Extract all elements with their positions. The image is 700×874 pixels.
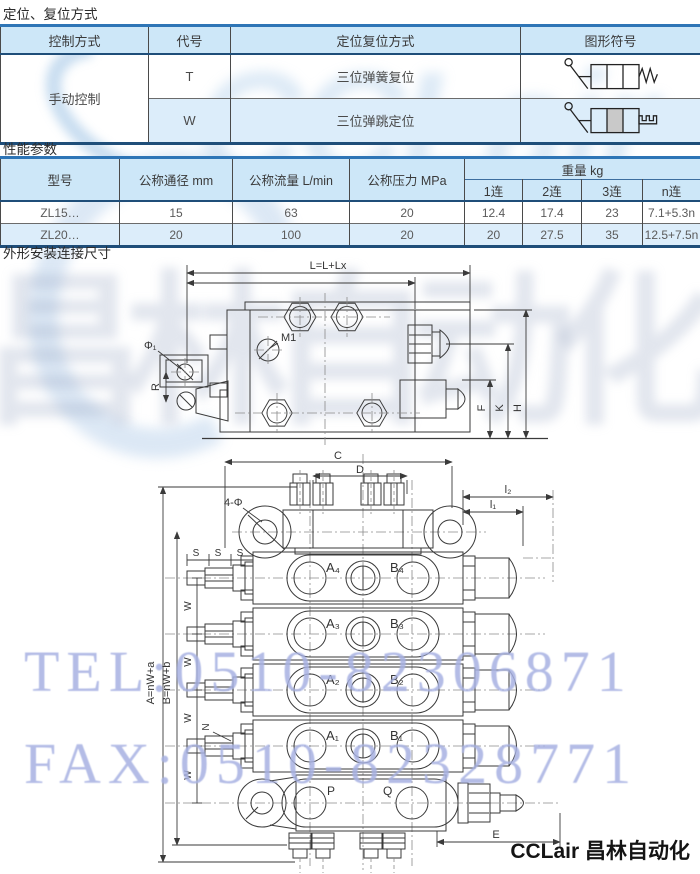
b-dim-label: B=nW+b [161,662,173,705]
positioning-section-title: 定位、复位方式 [3,3,98,23]
overall-length-label: L=L+Lx [310,260,347,272]
port-b4-label: B₄ [390,560,404,575]
port-a3-label: A₃ [326,616,340,631]
lever-detent-valve-symbol-icon [545,99,677,139]
port-a1-label: A₁ [326,728,340,743]
phi1-label: Φ₁ [144,340,157,352]
code-cell: W [149,99,231,144]
diameter-cell: 20 [120,224,233,247]
table-row-zl15: ZL15… 15 63 20 12.4 17.4 23 7.1+5.3n [1,201,700,224]
weight3-cell: 23 [582,201,643,224]
col-control-method: 控制方式 [1,26,149,55]
col-pressure: 公称压力 MPa [350,158,465,202]
model-cell: ZL15… [1,201,120,224]
flow-cell: 100 [233,224,350,247]
control-method-cell: 手动控制 [1,54,149,144]
diameter-cell: 15 [120,201,233,224]
s-label: S [193,548,200,559]
port-labels: A₄ B₄ A₃ B₃ A₂ B₂ A₁ B₁ P Q [326,560,404,798]
port-q-label: Q [383,784,392,798]
m1-label: M1 [281,332,296,344]
lever-spring-return-valve-symbol-icon [545,55,677,95]
port-b1-label: B₁ [390,728,404,743]
w-label: W [183,601,194,611]
port-a4-label: A₄ [326,560,340,575]
col-weight-3: 3连 [582,180,643,202]
col-code: 代号 [149,26,231,55]
holes-label: 4-Φ [224,497,243,509]
weight2-cell: 27.5 [523,224,582,247]
h-label: H [512,404,524,412]
top-cover-plate [239,470,476,558]
positioning-table-header-row: 控制方式 代号 定位复位方式 图形符号 [1,26,700,55]
s-label: S [237,548,244,559]
c-label: C [334,450,342,462]
dimensions-section-title: 外形安装连接尺寸 [3,242,111,262]
weight2-cell: 17.4 [523,201,582,224]
port-p-label: P [327,784,335,798]
col-model: 型号 [1,158,120,202]
positioning-table: 控制方式 代号 定位复位方式 图形符号 手动控制 T 三位弹簧复位 [0,24,700,145]
weight3-cell: 35 [582,224,643,247]
col-graphic-symbol: 图形符号 [521,26,700,55]
side-view-drawing: L=L+Lx M1 Φ₁ R F K H [0,253,700,453]
pressure-cell: 20 [350,201,465,224]
col-diameter: 公称通径 mm [120,158,233,202]
weight1-cell: 12.4 [465,201,523,224]
k-label: K [494,404,506,412]
w-label: W [183,770,194,780]
performance-table: 型号 公称通径 mm 公称流量 L/min 公称压力 MPa 重量 kg 1连 … [0,156,700,248]
weightn-cell: 12.5+7.5n [643,224,700,247]
col-flow: 公称流量 L/min [233,158,350,202]
r-label: R [150,383,162,391]
l1-label: l₁ [490,499,496,511]
table-row-T: 手动控制 T 三位弹簧复位 [1,54,700,99]
flow-cell: 63 [233,201,350,224]
top-view-drawing: C D 4-Φ l₂ l₁ A=nW+a B=nW+b E S S S W W … [0,450,700,874]
small-dim-labels: S S S W W W W N [183,548,244,780]
l2-label: l₂ [505,484,512,496]
inlet-section [238,775,524,873]
col-positioning-method: 定位复位方式 [231,26,521,55]
a-dim-label: A=nW+a [145,661,157,705]
method-cell: 三位弹跳定位 [231,99,521,144]
catalog-page: { "titles": { "positioning": "定位、复位方式", … [0,0,700,874]
w-label: W [183,657,194,667]
col-weight-2: 2连 [523,180,582,202]
col-weight-n: n连 [643,180,700,202]
valve-sections [165,552,545,772]
col-weight: 重量 kg [465,158,700,180]
port-b2-label: B₂ [390,672,404,687]
e-label: E [492,829,499,841]
performance-section-title: 性能参数 [3,138,57,158]
s-label: S [215,548,222,559]
n-label: N [201,723,212,730]
symbol-cell [521,99,700,144]
brand-text: CCLair 昌林自动化 [510,835,690,865]
centerlines [165,454,560,870]
weightn-cell: 7.1+5.3n [643,201,700,224]
method-cell: 三位弹簧复位 [231,54,521,99]
port-a2-label: A₂ [326,672,340,687]
d-label: D [356,464,364,476]
symbol-cell [521,54,700,99]
pressure-cell: 20 [350,224,465,247]
code-cell: T [149,54,231,99]
port-b3-label: B₃ [390,616,404,631]
f-label: F [476,404,488,411]
performance-header-row-1: 型号 公称通径 mm 公称流量 L/min 公称压力 MPa 重量 kg [1,158,700,180]
w-label: W [183,713,194,723]
col-weight-1: 1连 [465,180,523,202]
dimension-labels: C D 4-Φ l₂ l₁ A=nW+a B=nW+b E [145,450,511,841]
weight1-cell: 20 [465,224,523,247]
